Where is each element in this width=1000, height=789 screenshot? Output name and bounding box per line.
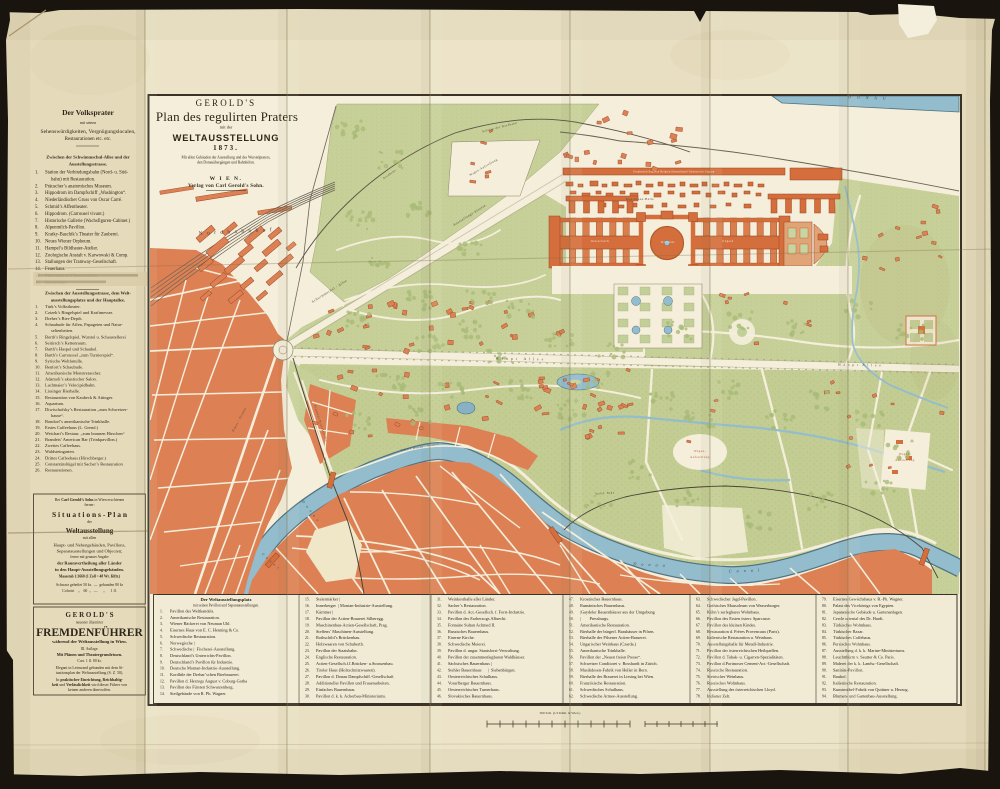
svg-text:Zwischen der Ausstellungsstras: Zwischen der Ausstellungsstrasse, dem We… [45, 291, 131, 296]
svg-text:Sacher’s Restauration.: Sacher’s Restauration. [448, 603, 487, 608]
svg-text:91.: 91. [822, 675, 827, 679]
svg-text:G E R O L D ' S: G E R O L D ' S [65, 611, 113, 619]
svg-text:Rotunde: Rotunde [661, 240, 675, 244]
svg-text:Weinkosthalle aller Länder.: Weinkosthalle aller Länder. [448, 597, 495, 602]
svg-text:74.: 74. [696, 668, 701, 672]
svg-text:18.: 18. [35, 419, 41, 424]
svg-text:Waldsteingarten.: Waldsteingarten. [45, 449, 75, 454]
svg-text:keit und Verlässlichkeit wird: keit und Verlässlichkeit wird dieser Füh… [52, 683, 127, 687]
svg-text:ferner:: ferner: [84, 503, 94, 507]
svg-text:Mit Plänen und Theatergrundris: Mit Plänen und Theatergrundrissen. [57, 652, 123, 657]
svg-text:Steiermärker |: Steiermärker | [316, 597, 340, 602]
svg-text:16.: 16. [35, 401, 41, 406]
svg-text:Präuscher’s anatomisches Museu: Präuscher’s anatomisches Museum. [45, 184, 112, 189]
svg-text:10.: 10. [160, 667, 165, 671]
svg-text:82.: 82. [822, 617, 827, 621]
svg-text:Sächsisches Bauernhaus |: Sächsisches Bauernhaus | [448, 661, 492, 666]
svg-text:75.: 75. [696, 675, 701, 679]
svg-text:8.: 8. [160, 654, 163, 658]
svg-text:Benfort’s Schaubude.: Benfort’s Schaubude. [45, 365, 83, 370]
svg-text:|Gaydeler Bauernhäuser aus der: |Gaydeler Bauernhäuser aus der Umgebung [580, 609, 656, 614]
svg-text:7.: 7. [35, 346, 38, 351]
svg-text:Musikdosen-Fabrik von Heller i: Musikdosen-Fabrik von Heller in Bern. [580, 667, 648, 672]
svg-text:12.: 12. [35, 377, 41, 382]
svg-text:Historische Gallerie (Wachsfig: Historische Gallerie (Wachsfiguren-Cabin… [45, 219, 131, 224]
svg-text:Drittes Caffeehaus (Hirschberg: Drittes Caffeehaus (Hirschberger.) [45, 455, 107, 460]
svg-text:1.: 1. [35, 304, 38, 309]
svg-text:Restaurationen.: Restaurationen. [45, 467, 73, 472]
svg-text:20.: 20. [305, 630, 310, 634]
svg-text:Pavillon d. Act.-Gesellsch. f.: Pavillon d. Act.-Gesellsch. f. Forst-Ind… [448, 609, 525, 614]
svg-text:Amerikanische Trinkhalle.: Amerikanische Trinkhalle. [580, 648, 626, 653]
svg-text:71.: 71. [696, 649, 701, 653]
svg-text:Schwedische Restauration.: Schwedische Restauration. [170, 634, 216, 639]
svg-text:Amerikanische Monstretascher.: Amerikanische Monstretascher. [45, 371, 101, 376]
svg-text:in den Haupt-Ausstellungsgebäu: in den Haupt-Ausstellungsgebäuden. [55, 567, 124, 572]
svg-text:Pavillon d. k. k. Acherbau-Min: Pavillon d. k. k. Acherbau-Ministeriums. [316, 693, 386, 698]
svg-text:H a u p t A l l e e: H a u p t A l l e e [496, 357, 545, 362]
svg-text:Additioneller Pavillon und Fra: Additioneller Pavillon und Frauenarbeite… [316, 680, 390, 685]
svg-text:mit allen: mit allen [83, 536, 96, 540]
svg-text:Maschinen-Halle: Maschinen-Halle [626, 197, 654, 201]
svg-text:Constantinshügel mit Sacher’s: Constantinshügel mit Sacher’s Restaurati… [45, 461, 123, 466]
svg-text:Syrische Weltfanulle.: Syrische Weltfanulle. [45, 358, 83, 363]
svg-text:Pavillon der Staatsbahn.: Pavillon der Staatsbahn. [316, 648, 358, 653]
svg-text:tuationsplan der Weltausstellu: tuationsplan der Weltausstellung (S. Z. … [56, 671, 124, 675]
svg-text:81.: 81. [822, 610, 827, 614]
svg-text:Pavillon d. Donau Dampfschiff.: Pavillon d. Donau Dampfschiff.-Gesellsch… [316, 674, 394, 679]
svg-text:6.: 6. [160, 641, 163, 645]
svg-text:den Donauübergängen und Bahnhö: den Donauübergängen und Bahnhöfen. [197, 161, 255, 165]
svg-text:Czizek’s Ringelspiel und Kraft: Czizek’s Ringelspiel und Kraftmesser. [45, 310, 113, 315]
svg-text:Ungarischer Weinbaus (Czarda.): Ungarischer Weinbaus (Czarda.) [580, 642, 637, 647]
svg-text:Innerberger | Montan-Industri: Innerberger | Montan-Industrie-Ausstellu… [316, 603, 393, 608]
svg-text:Türk’s Volkstheater.: Türk’s Volkstheater. [45, 304, 81, 309]
svg-text:Kroatisches Bauernhaus.: Kroatisches Bauernhaus. [580, 597, 623, 602]
svg-text:1.: 1. [35, 171, 39, 176]
svg-text:Einfaches Bauernhaus.: Einfaches Bauernhaus. [316, 687, 355, 692]
svg-text:Sehenswürdigkeiten, Vergnügung: Sehenswürdigkeiten, Vergnügungslocalen, [40, 129, 136, 135]
svg-text:19.: 19. [35, 425, 41, 430]
svg-text:Adamoli’s akustischer Salon.: Adamoli’s akustischer Salon. [45, 377, 97, 382]
svg-text:Erstes Caffeehaus (L. Grend.): Erstes Caffeehaus (L. Grend.) [45, 425, 99, 430]
svg-text:Russisches Bauernhaus.: Russisches Bauernhaus. [448, 629, 489, 634]
svg-text:93.: 93. [822, 688, 827, 692]
svg-text:6.: 6. [35, 340, 38, 345]
svg-text:Pavillon der Actien-Brauerei S: Pavillon der Actien-Brauerei Silberegg. [316, 616, 384, 621]
svg-text:3.: 3. [35, 316, 38, 321]
svg-text:Hampel’s Bildhauer-Atelier.: Hampel’s Bildhauer-Atelier. [45, 246, 98, 251]
svg-text:18.: 18. [305, 617, 310, 621]
svg-text:Zwischen der Schwimmschul-Alle: Zwischen der Schwimmschul-Allee und der [46, 155, 129, 160]
svg-text:17.: 17. [305, 610, 310, 614]
svg-text:69.: 69. [696, 636, 701, 640]
svg-text:Wiener Bäckerei von Neuman Uhl: Wiener Bäckerei von Neuman Uhl. [170, 621, 231, 626]
svg-text:68.: 68. [696, 630, 701, 634]
svg-text:Tiroler Haus (Holzschnitzwaare: Tiroler Haus (Holzschnitzwaaren). [316, 667, 376, 672]
svg-text:Hippodrom. (Carrousel vivant.): Hippodrom. (Carrousel vivant.) [45, 212, 105, 217]
svg-text:bahn) mit Restauration.: bahn) mit Restauration. [51, 177, 95, 182]
svg-text:80.: 80. [822, 604, 827, 608]
svg-text:14.: 14. [35, 267, 41, 272]
svg-text:83.: 83. [822, 623, 827, 627]
svg-text:Maasstab 1:3660 (1 Zoll = 48 W: Maasstab 1:3660 (1 Zoll = 48 Wr. Klftr.) [59, 575, 121, 579]
svg-text:7.: 7. [160, 648, 163, 652]
svg-text:Norwegische |: Norwegische | [170, 640, 195, 645]
svg-text:FREMDENFÜHRER: FREMDENFÜHRER [36, 625, 143, 639]
svg-text:24.: 24. [305, 656, 310, 660]
svg-text:21.: 21. [35, 437, 41, 442]
svg-text:S i t u a t i o n s - P l a n: S i t u a t i o n s - P l a n [52, 510, 128, 519]
svg-text:23.: 23. [35, 449, 41, 454]
svg-text:14.: 14. [160, 692, 165, 696]
svg-text:Pavillon d. ungar. Staatsforst: Pavillon d. ungar. Staatsforst-Verwaltun… [448, 648, 520, 653]
svg-text:16.: 16. [305, 604, 310, 608]
svg-text:ferner mit genauer Angabe: ferner mit genauer Angabe [70, 555, 109, 559]
svg-text:Rothschild’s Brückenbau.: Rothschild’s Brückenbau. [316, 635, 360, 640]
svg-text:Bondorf’s amerikanische Trinkh: Bondorf’s amerikanische Trinkhalle. [45, 419, 110, 424]
svg-text:78.: 78. [696, 694, 701, 698]
svg-text:Bierhalle der Pilsener Actien-: Bierhalle der Pilsener Actien-Brauerei. [580, 635, 647, 640]
svg-text:Fontaine Sultan Achmed II.: Fontaine Sultan Achmed II. [448, 622, 496, 627]
svg-text:85.: 85. [822, 636, 827, 640]
svg-text:15.: 15. [35, 395, 41, 400]
svg-text:mit der: mit der [220, 125, 233, 130]
svg-text:In praktischer Einrichtung, Re: In praktischer Einrichtung, Reichhaltig- [56, 678, 123, 682]
svg-text:12.: 12. [35, 253, 41, 258]
svg-text:Lachmaier’s Velocipèdbahn.: Lachmaier’s Velocipèdbahn. [45, 383, 96, 388]
svg-text:17.: 17. [35, 407, 41, 412]
svg-text:der: der [87, 520, 93, 524]
svg-text:5.: 5. [35, 334, 38, 339]
svg-text:Deutschland’s Unterrichts-Pavi: Deutschland’s Unterrichts-Pavillon. [170, 653, 232, 658]
svg-text:77.: 77. [696, 688, 701, 692]
svg-text:Schmid’s Affentheater.: Schmid’s Affentheater. [45, 205, 88, 210]
svg-text:1.: 1. [160, 610, 163, 614]
svg-text:Seitirsch’s Kettenraum.: Seitirsch’s Kettenraum. [45, 340, 87, 345]
svg-text:13.: 13. [160, 686, 165, 690]
svg-text:13.: 13. [35, 383, 41, 388]
svg-text:22.: 22. [305, 643, 310, 647]
svg-text:25.: 25. [305, 662, 310, 666]
svg-text:Plan des regulirten Praters: Plan des regulirten Praters [156, 109, 298, 124]
svg-text:Stehler Bauernhaus | Sie: Stehler Bauernhaus | Siebenbürgen. [448, 667, 516, 672]
svg-text:Schwedische Meierei.: Schwedische Meierei. [448, 642, 486, 647]
svg-text:Der Volksprater: Der Volksprater [62, 108, 114, 117]
svg-text:Hippodrom im Dampfschiff „Wash: Hippodrom im Dampfschiff „Washington“. [45, 190, 126, 196]
svg-text:Station der Verbindungsbahn (N: Station der Verbindungsbahn (Nord- u. Sü… [45, 171, 128, 176]
svg-text:9.: 9. [160, 660, 163, 664]
svg-text:Oesterreichisches Schulhaus.: Oesterreichisches Schulhaus. [448, 674, 498, 679]
svg-text:88.: 88. [822, 656, 827, 660]
svg-text:5.: 5. [160, 635, 163, 639]
svg-text:neuester illustrirter: neuester illustrirter [76, 621, 104, 625]
svg-text:W I E N.: W I E N. [210, 176, 243, 182]
svg-text:Bierhalle der Brauerei in Lies: Bierhalle der Brauerei in Liesing bei Wi… [580, 674, 654, 679]
svg-text:Barth’s Haspel und Schaukel.: Barth’s Haspel und Schaukel. [45, 346, 98, 351]
svg-text:Schweizer Conditorei v. Bossha: Schweizer Conditorei v. Bosshardt in Zür… [580, 661, 658, 666]
svg-text:Schwedische Armee-Ausstellung.: Schwedische Armee-Ausstellung. [580, 693, 638, 698]
svg-text:86.: 86. [822, 643, 827, 647]
svg-text:11.: 11. [35, 246, 41, 251]
svg-text:2.: 2. [35, 310, 38, 315]
svg-text:Zoologische Anstalt v. Karwows: Zoologische Anstalt v. Karwowski & Comp. [45, 253, 128, 258]
svg-text:94.: 94. [822, 694, 827, 698]
svg-text:13.: 13. [35, 260, 41, 265]
svg-text:| Pressburgs.: | Pressburgs. [580, 616, 609, 621]
svg-text:Oesterreich: Oesterreich [591, 240, 609, 243]
svg-text:76.: 76. [696, 681, 701, 685]
svg-text:Brandeis’ American Bar (Trinkp: Brandeis’ American Bar (Trinkpavillon.) [45, 437, 118, 442]
svg-text:64.: 64. [696, 604, 701, 608]
svg-text:WELTAUSSTELLUNG: WELTAUSSTELLUNG [173, 133, 280, 143]
svg-text:84.: 84. [822, 630, 827, 634]
svg-text:hause“.: hause“. [51, 413, 64, 418]
svg-text:Bei Carl Gerold’s Sohn in Wien: Bei Carl Gerold’s Sohn in Wien erschiene… [55, 498, 124, 502]
svg-text:Separatausstellungen und Objec: Separatausstellungen und Objecten; [57, 549, 123, 554]
svg-text:25.: 25. [35, 461, 41, 466]
svg-text:87.: 87. [822, 649, 827, 653]
svg-text:Restauration von Kaubeck & Att: Restauration von Kaubeck & Attinger. [45, 395, 113, 400]
svg-text:Pavillon des Fürsten Schwarzen: Pavillon des Fürsten Schwarzenberg. [170, 685, 234, 690]
svg-text:Schwarz geheftet 50 kr. — ge: Schwarz geheftet 50 kr. — gebunden 80 kr [56, 583, 124, 587]
svg-text:Neues Wiener Orpheum.: Neues Wiener Orpheum. [45, 240, 91, 245]
svg-text:72.: 72. [696, 656, 701, 660]
svg-text:Pavillon d. Herzogs August v.: Pavillon d. Herzogs August v. Coburg-Got… [170, 678, 247, 683]
svg-text:Zweites Caffeehaus.: Zweites Caffeehaus. [45, 443, 81, 448]
svg-text:5.: 5. [35, 205, 39, 210]
svg-text:70.: 70. [696, 643, 701, 647]
svg-text:11.: 11. [35, 371, 40, 376]
svg-text:GEROLD'S: GEROLD'S [196, 98, 257, 108]
svg-text:8.: 8. [35, 226, 39, 231]
svg-text:Französische Restauration.: Französische Restauration. [580, 680, 626, 685]
svg-text:Kärntner |: Kärntner | [316, 609, 333, 614]
svg-text:8.: 8. [35, 352, 38, 357]
svg-text:der Raumvertheilung aller Länd: der Raumvertheilung aller Länder [57, 561, 122, 566]
svg-text:92.: 92. [822, 681, 827, 685]
svg-text:Kratky-Baschik’s Theater für Z: Kratky-Baschik’s Theater für Zauberei. [45, 233, 119, 238]
svg-text:26.: 26. [305, 668, 310, 672]
svg-text:Actien-Gesellsch.f.I.Brücken-: Actien-Gesellsch.f.I.Brücken- u.Strassen… [316, 661, 394, 666]
svg-text:Restaurationen etc. etc.: Restaurationen etc. etc. [65, 137, 112, 142]
svg-text:Bierhalle der bürgerl. Brauhäu: Bierhalle der bürgerl. Brauhäuser in Pil… [580, 629, 655, 634]
svg-text:Aufstellung: Aufstellung [895, 458, 915, 462]
svg-text:Slovakisches Bauernhaus.: Slovakisches Bauernhaus. [448, 693, 493, 698]
svg-text:Alpenmilch-Pavillon.: Alpenmilch-Pavillon. [45, 226, 86, 231]
svg-text:Amerikanische Restauration.: Amerikanische Restauration. [580, 622, 630, 627]
svg-text:66.: 66. [696, 617, 701, 621]
svg-text:Kordhtle der Drehar’schen Bier: Kordhtle der Drehar’schen Bierbrauerei. [170, 672, 240, 677]
svg-text:Deutsche Montan-Industrie-Auss: Deutsche Montan-Industrie-Ausstellung. [170, 666, 240, 671]
svg-text:9.: 9. [35, 358, 38, 363]
svg-text:Aquarium.: Aquarium. [45, 401, 64, 406]
svg-text:14.: 14. [35, 389, 41, 394]
svg-text:Wagen-: Wagen- [899, 452, 911, 456]
svg-text:Lissinger Bierhalle.: Lissinger Bierhalle. [45, 389, 80, 394]
svg-text:Deutschland’s Pavillon für Ind: Deutschland’s Pavillon für Industrie. [170, 659, 233, 664]
svg-text:Pavillon des Weltkandels.: Pavillon des Weltkandels. [170, 609, 214, 614]
svg-text:mit seinen: mit seinen [80, 121, 96, 125]
svg-text:6.: 6. [35, 212, 39, 217]
svg-text:Holzwaaren von Schuberth.: Holzwaaren von Schuberth. [316, 642, 364, 647]
svg-text:4.: 4. [35, 322, 38, 327]
svg-text:67.: 67. [696, 623, 701, 627]
svg-text:Vorarlberger Bauernhaus.: Vorarlberger Bauernhaus. [448, 680, 492, 685]
svg-text:12.: 12. [160, 679, 165, 683]
svg-text:Dreher’s Bier-Depôt.: Dreher’s Bier-Depôt. [45, 316, 83, 321]
svg-text:15.: 15. [305, 598, 310, 602]
svg-text:keinen anderen übertroffen.: keinen anderen übertroffen. [68, 688, 111, 692]
svg-text:Steilgebäude von R. Ph. Wagner: Steilgebäude von R. Ph. Wagner. [170, 691, 227, 696]
svg-text:III. Auflage.: III. Auflage. [81, 647, 99, 651]
svg-text:90.: 90. [822, 668, 827, 672]
svg-text:11.: 11. [160, 673, 165, 677]
svg-text:Englische Restauration.: Englische Restauration. [316, 655, 357, 660]
svg-text:Cart. 1 fl. 80 kr.: Cart. 1 fl. 80 kr. [77, 659, 101, 663]
svg-text:24.: 24. [35, 455, 41, 460]
svg-text:3.: 3. [35, 191, 39, 196]
svg-text:3.: 3. [160, 622, 163, 626]
svg-text:21.: 21. [305, 636, 310, 640]
svg-text:9.: 9. [35, 233, 39, 238]
svg-text:22.: 22. [35, 443, 41, 448]
svg-text:10.: 10. [35, 240, 41, 245]
svg-text:4.: 4. [35, 198, 39, 203]
svg-text:28.: 28. [305, 681, 310, 685]
svg-text:Verlag von Carl Gerold's Sohn.: Verlag von Carl Gerold's Sohn. [188, 184, 264, 189]
svg-text:Ausstellungsstrasse.: Ausstellungsstrasse. [69, 162, 107, 167]
svg-text:1873.: 1873. [213, 144, 239, 152]
svg-text:Steffens’ Maschinen-Ausstellun: Steffens’ Maschinen-Ausstellung. [316, 629, 374, 634]
svg-text:30.: 30. [305, 694, 310, 698]
svg-text:27.: 27. [305, 675, 310, 679]
svg-text:Ungarn: Ungarn [722, 240, 733, 243]
svg-text:Pavillon des Erzherzogs Albrec: Pavillon des Erzherzogs Albrecht. [448, 616, 506, 621]
svg-text:63.: 63. [696, 598, 701, 602]
svg-text:65.: 65. [696, 610, 701, 614]
svg-text:79.: 79. [822, 598, 827, 602]
svg-text:73.: 73. [696, 662, 701, 666]
svg-text:26.: 26. [35, 467, 41, 472]
svg-text:20.: 20. [35, 431, 41, 436]
svg-text:7.: 7. [35, 219, 39, 224]
svg-text:29.: 29. [305, 688, 310, 692]
svg-text:Schwedisches Schulhaus.: Schwedisches Schulhaus. [580, 687, 624, 692]
svg-text:19.: 19. [305, 623, 310, 627]
svg-text:mit seinen Pavillon und Separa: mit seinen Pavillon und Separatausstellu… [193, 604, 259, 608]
svg-text:Pavillon der zusammenlegbaren: Pavillon der zusammenlegbaren Waldhäuser… [448, 655, 525, 660]
svg-text:ausstellungsplatze und der Hau: ausstellungsplatze und der Hauptallee. [51, 298, 125, 303]
svg-text:4.: 4. [160, 629, 163, 633]
svg-text:während der Weltausstellung in: während der Weltausstellung in Wien. [52, 639, 127, 644]
svg-text:89.: 89. [822, 662, 827, 666]
svg-text:Elegant in Leinwand gebunden m: Elegant in Leinwand gebunden mit dem Si- [56, 666, 125, 670]
svg-text:Rumänisches Bauernhaus.: Rumänisches Bauernhaus. [580, 603, 625, 608]
svg-text:2.: 2. [35, 184, 39, 189]
svg-text:Oesterreichisches Turnerhaus.: Oesterreichisches Turnerhaus. [448, 687, 500, 692]
svg-text:Der Weltausstellungsplatz: Der Weltausstellungsplatz [200, 597, 251, 602]
svg-text:Eisernes Haus von E. C. Hennin: Eisernes Haus von E. C. Henning & Co. [170, 628, 239, 633]
svg-text:2.: 2. [160, 616, 163, 620]
svg-text:seltenheiten.: seltenheiten. [51, 328, 73, 333]
svg-text:Stallungen der Tramway-Gesells: Stallungen der Tramway-Gesellschaft. [45, 260, 117, 265]
svg-text:23.: 23. [305, 649, 310, 653]
svg-text:Schwedische | Fischerei-Ausst: Schwedische | Fischerei-Ausstellung. [170, 647, 235, 652]
svg-text:Amerikanische Restauration.: Amerikanische Restauration. [170, 615, 220, 620]
svg-text:Niederländischer Gruss von Osc: Niederländischer Gruss von Oscar Carré. [45, 198, 122, 203]
svg-text:10.: 10. [35, 365, 41, 370]
svg-text:Eiserne Kirche.: Eiserne Kirche. [448, 635, 475, 640]
